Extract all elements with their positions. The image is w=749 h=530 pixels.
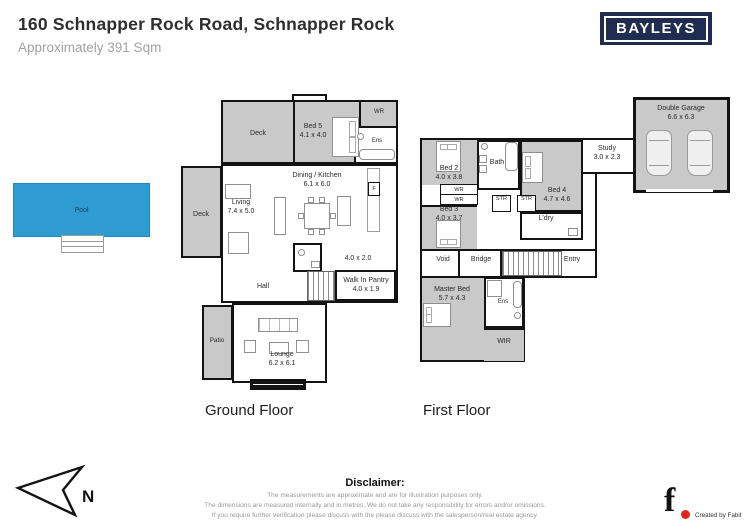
ff-storage-2: STR [517,195,536,212]
fridge-icon: F [368,182,380,196]
dining-table-icon [304,203,330,229]
pool-label: Pool [74,207,88,214]
room-label-void: Void [436,255,450,264]
disclaimer-line: The dimensions are measured internally a… [170,501,580,511]
room-label-lounge: Lounge6.2 x 6.1 [269,350,296,368]
vanity-icon [479,155,487,163]
chair-icon [308,197,314,203]
wr-label: WR [454,197,463,203]
room-label-wr: WR [374,109,384,117]
bed-icon [522,152,543,183]
first-floor-caption: First Floor [423,402,491,419]
wr-label: WR [454,187,463,193]
compass-n-label: N [82,487,94,506]
bathtub-icon [359,149,395,160]
vanity-icon [479,165,487,173]
room-label-deck: Deck [250,129,266,138]
ff-wardrobe-2: WR [440,194,478,205]
room-label-entry: Entry [564,255,580,264]
toilet-icon [357,133,364,140]
chair-icon [330,213,336,219]
room-label-utility-dims: 4.0 x 2.0 [345,254,372,263]
bed-icon [423,303,451,327]
toilet-icon [514,312,521,319]
room-label-bridge: Bridge [471,255,491,264]
kitchen-island-icon [337,196,351,226]
toilet-icon [481,143,488,150]
wall [359,102,361,128]
room-label-wir: WIR [497,337,511,346]
sofa-icon [274,197,286,235]
str-label: STR [521,196,532,202]
garage-door [646,189,713,192]
ff-stairs [502,251,562,276]
fabit-logo: f [664,484,675,518]
disclaimer-heading: Disclaimer: [170,477,580,489]
fridge-label: F [372,186,375,192]
floorplan-page: 160 Schnapper Rock Road, Schnapper Rock … [0,0,749,530]
kitchen-counter-icon [367,168,380,232]
room-label-deck-left: Deck [193,210,209,219]
bathtub-icon [505,142,518,171]
page-subtitle: Approximately 391 Sqm [18,40,161,55]
sofa-icon [258,318,298,332]
car-icon [646,130,672,176]
bathtub-icon [513,281,522,308]
pool: Pool [13,183,150,237]
ff-storage-1: STR [492,195,511,212]
room-label-hall: Hall [257,282,269,291]
bayleys-logo-frame: BAYLEYS [604,16,708,42]
room-label-bath: Bath [490,158,504,167]
page-title: 160 Schnapper Rock Road, Schnapper Rock [18,14,394,35]
room-label-study: Study3.0 x 2.3 [594,144,621,162]
shower-icon [487,280,502,297]
shelf-icon [228,232,249,254]
chair-icon [319,229,325,235]
ground-floor-caption: Ground Floor [205,402,293,419]
disclaimer: Disclaimer: The measurements are approxi… [170,477,580,522]
room-label-pantry: Walk In Pantry4.0 x 1.9 [343,276,388,294]
bayleys-logo: BAYLEYS [600,12,712,45]
wall [293,102,295,162]
bed-icon [436,220,461,248]
north-arrow-icon: N [12,460,112,524]
bayleys-logo-text: BAYLEYS [616,20,696,37]
fabit-credit-text: Created by Fabit [695,512,742,519]
room-label-ens: Ens [372,138,382,146]
disclaimer-line: If you require further verification plea… [170,511,580,521]
gf-stairs [307,271,335,301]
room-label-living: Living7.4 x 5.0 [228,198,255,216]
bay-window [250,379,306,390]
room-label-bed3: Bed 34.0 x 3.7 [436,205,463,223]
room-label-bed4: Bed 44.7 x 4.6 [544,186,571,204]
str-label: STR [496,196,507,202]
room-label-patio: Patio [210,337,225,345]
wall [458,251,460,276]
room-label-dining-kitchen: Dining / Kitchen6.1 x 6.0 [292,171,341,189]
car-icon [687,130,713,176]
shelf-icon [225,184,251,199]
room-label-laundry: L'dry [539,214,554,223]
room-label-bed2: Bed 24.0 x 3.8 [436,164,463,182]
chair-icon [319,197,325,203]
pool-steps [61,235,104,253]
disclaimer-line: The measurements are approximate and are… [170,491,580,501]
room-label-ensuite: Ens [498,299,508,307]
armchair-icon [296,340,309,353]
bed-icon [332,117,359,157]
chair-icon [308,229,314,235]
room-label-garage: Double Garage6.6 x 6.3 [657,104,704,122]
basin-icon [311,261,320,268]
fabit-logo-dot [681,510,690,519]
room-label-bed5: Bed 54.1 x 4.0 [300,122,327,140]
armchair-icon [244,340,256,353]
appliance-icon [568,228,578,236]
chair-icon [298,213,304,219]
toilet-icon [298,249,305,256]
room-label-master-bed: Master Bed5.7 x 4.3 [434,285,470,303]
